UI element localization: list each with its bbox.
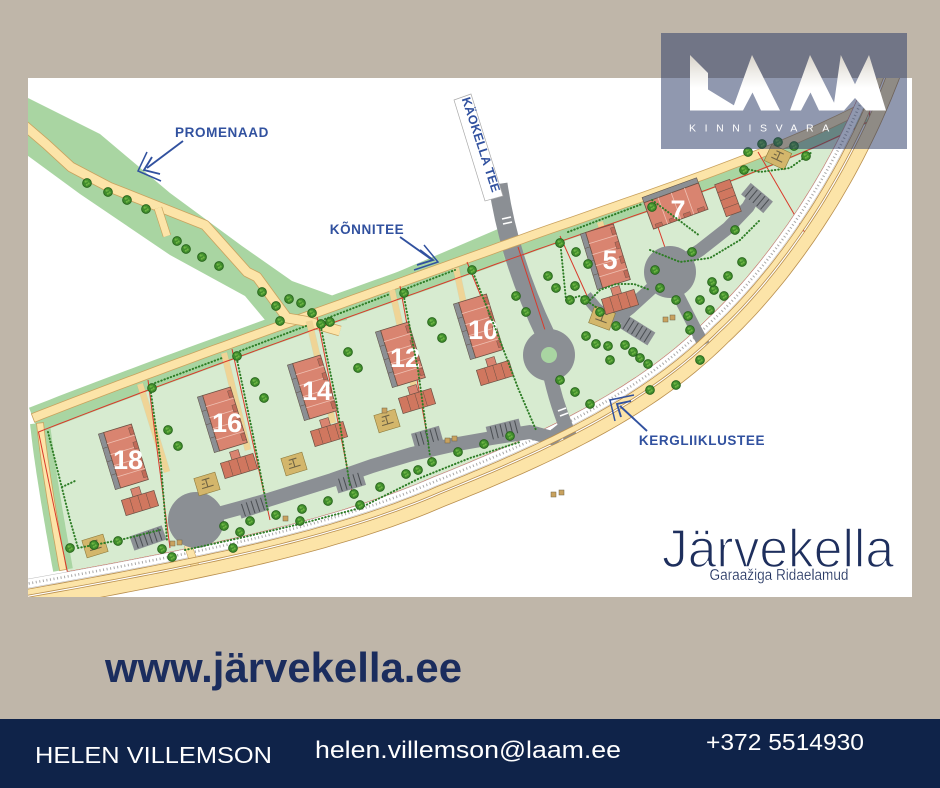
svg-text:16: 16 bbox=[212, 408, 242, 438]
svg-text:5: 5 bbox=[602, 245, 617, 275]
svg-text:KÕNNITEE: KÕNNITEE bbox=[330, 222, 405, 237]
svg-text:www.järvekella.ee: www.järvekella.ee bbox=[104, 644, 462, 691]
svg-text:18: 18 bbox=[113, 445, 143, 475]
svg-text:KERGLIIKLUSTEE: KERGLIIKLUSTEE bbox=[639, 433, 765, 448]
svg-text:HELEN VILLEMSON: HELEN VILLEMSON bbox=[35, 742, 272, 768]
svg-text:Garaažiga Ridaelamud: Garaažiga Ridaelamud bbox=[710, 567, 849, 584]
svg-text:PROMENAAD: PROMENAAD bbox=[175, 125, 269, 140]
svg-text:10: 10 bbox=[468, 315, 498, 345]
svg-text:14: 14 bbox=[302, 376, 332, 406]
svg-text:helen.villemson@laam.ee: helen.villemson@laam.ee bbox=[315, 737, 621, 764]
svg-text:+372 5514930: +372 5514930 bbox=[706, 729, 864, 755]
svg-text:KINNISVARA: KINNISVARA bbox=[689, 123, 838, 135]
